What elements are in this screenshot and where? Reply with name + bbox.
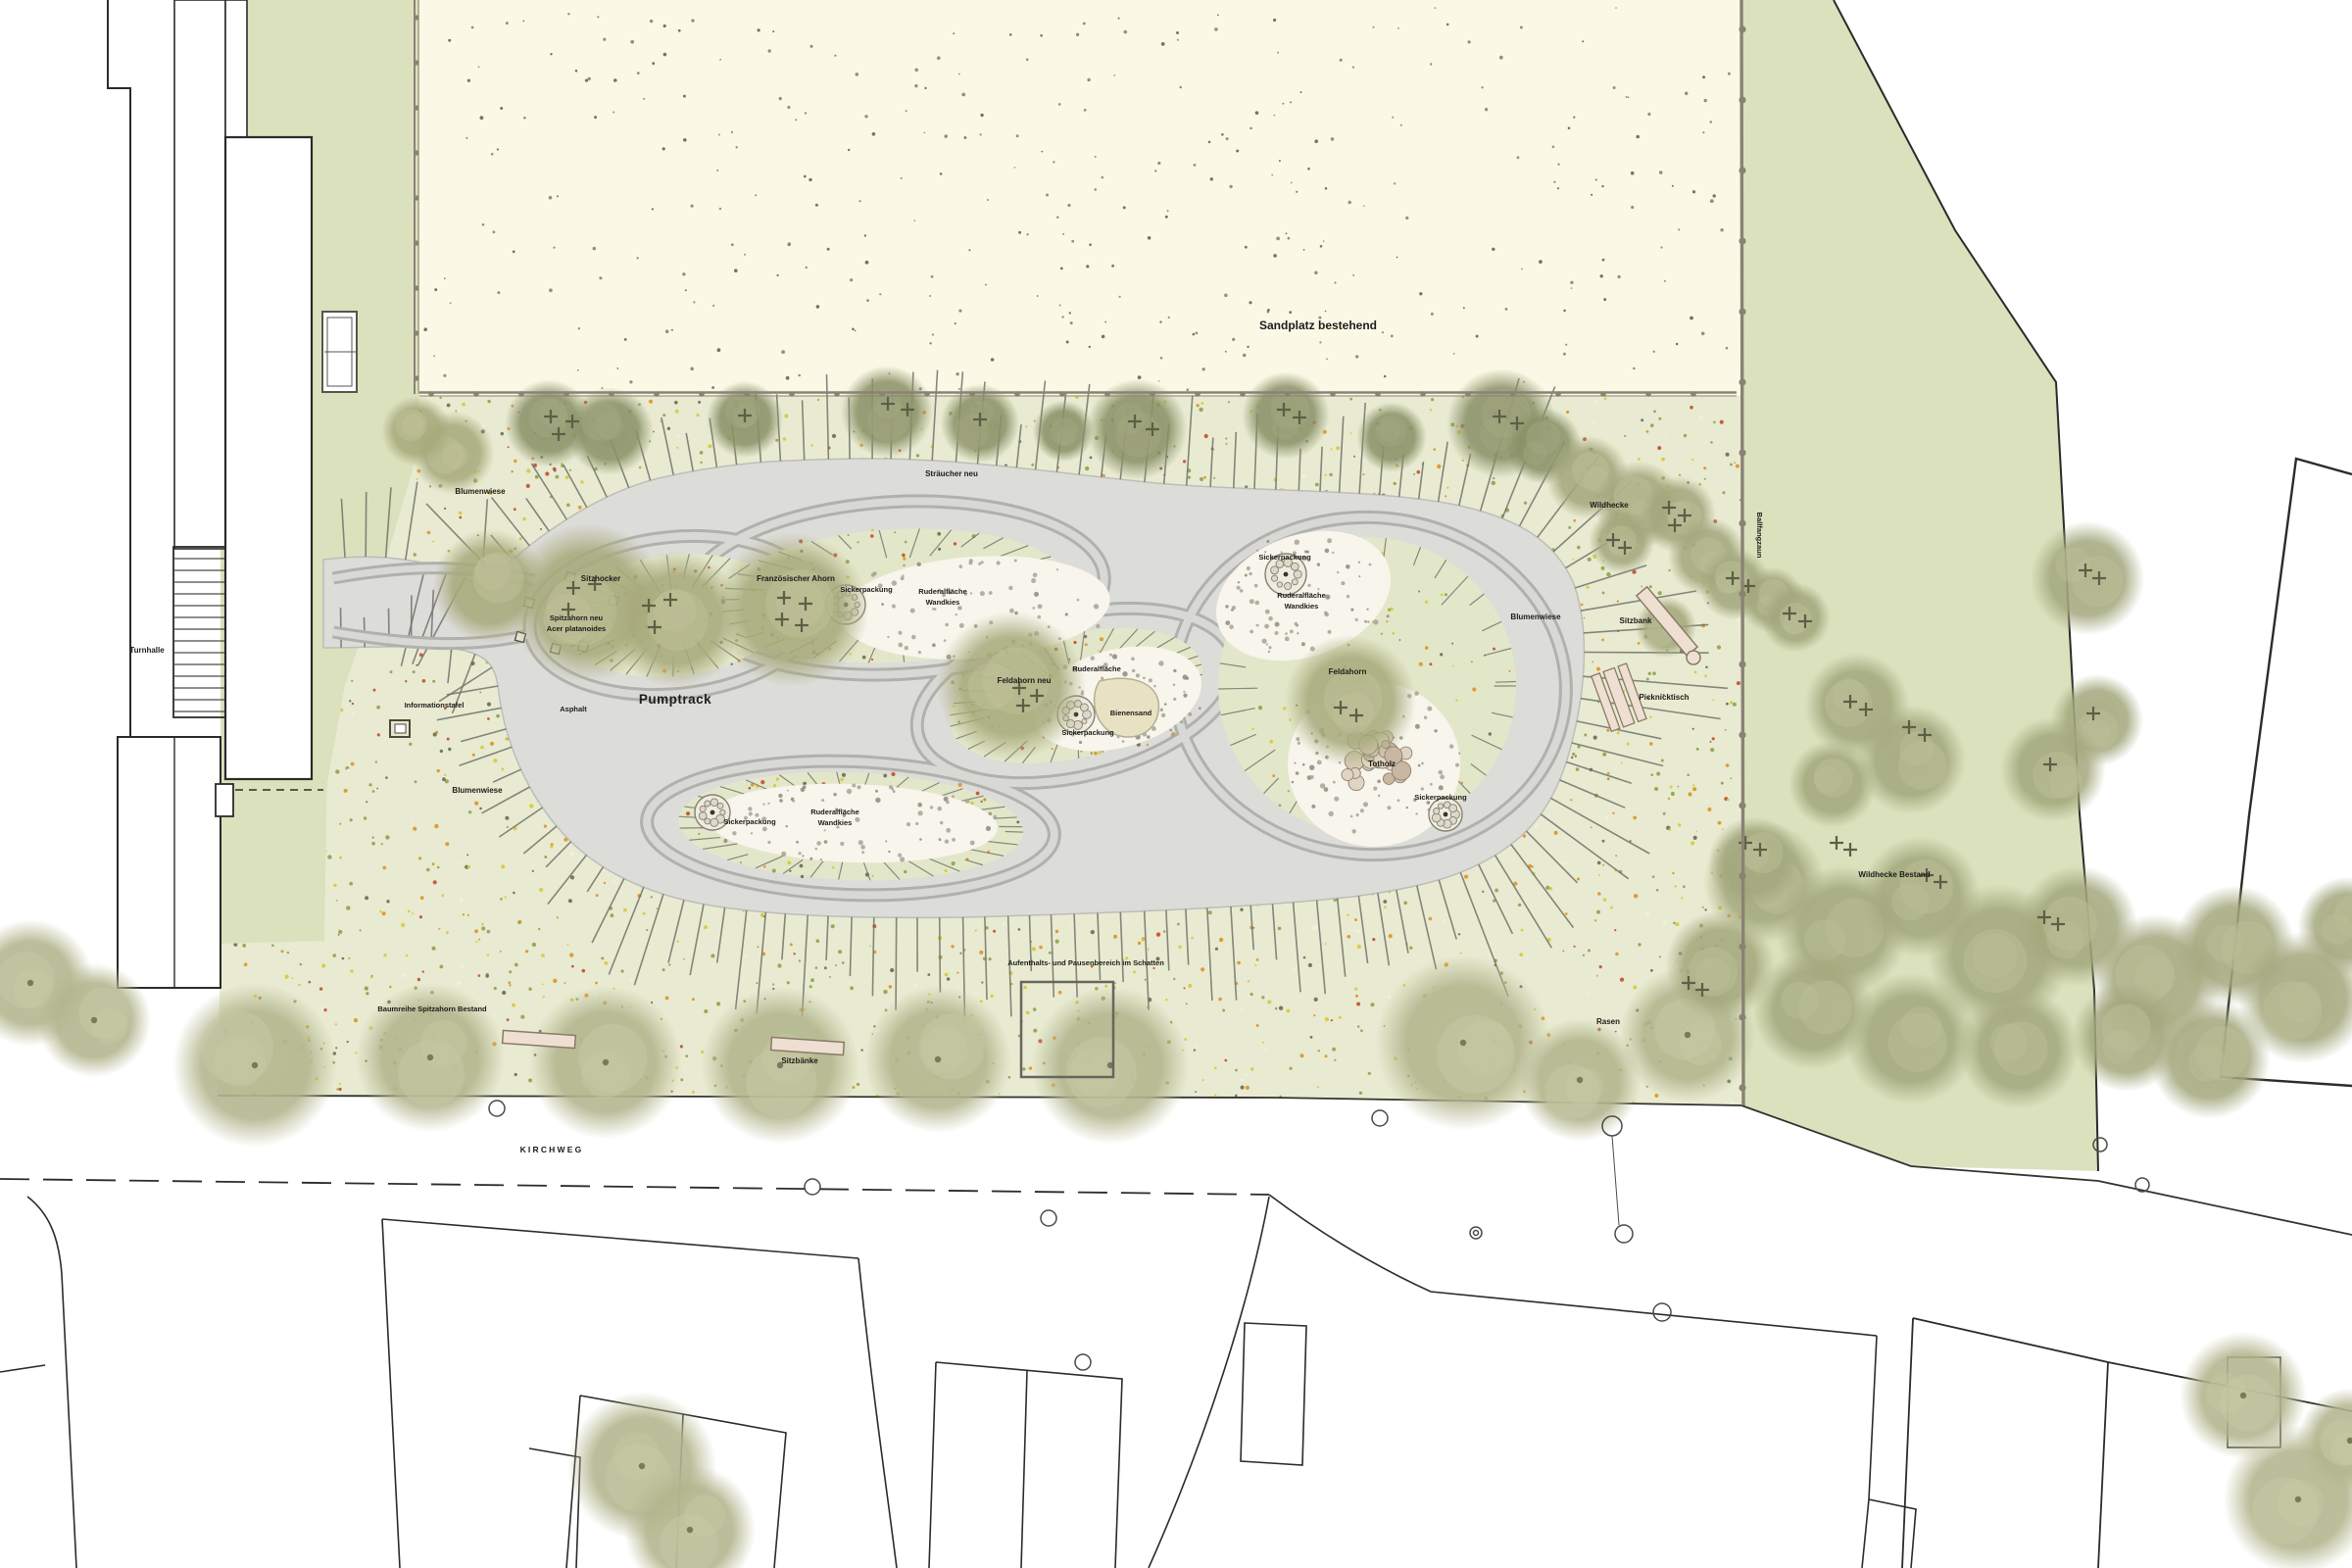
corridor — [174, 0, 225, 549]
turnhalle-annex — [225, 0, 247, 137]
tree — [1031, 986, 1189, 1144]
label-blumenwiese-left: Blumenwiese — [452, 786, 503, 795]
tree — [1356, 402, 1427, 472]
label-sickerpackung-3: Sickerpackung — [1258, 553, 1311, 562]
label-aufenthaltsbereich: Aufenthalts- und Pausenbereich im Schatt… — [1007, 958, 1164, 967]
tree — [529, 986, 683, 1140]
parcel-tick-left — [0, 1365, 45, 1372]
tree — [1845, 973, 1977, 1104]
bench-end-post — [1687, 651, 1700, 664]
tree — [1760, 582, 1831, 653]
tree — [565, 387, 654, 475]
label-rasen: Rasen — [1596, 1017, 1620, 1026]
tree — [172, 983, 337, 1148]
label-pumptrack: Pumptrack — [639, 692, 711, 707]
turnhalle-building — [225, 137, 312, 779]
building-small-center — [1241, 1323, 1306, 1465]
label-baumreihe: Baumreihe Spitzahorn Bestand — [377, 1004, 487, 1013]
road-south-edge-right — [1269, 1195, 1916, 1568]
label-feldahorn-neu: Feldahorn neu — [997, 676, 1051, 685]
parcel-center — [929, 1362, 1122, 1568]
sand-area — [419, 0, 1741, 396]
tree — [1086, 378, 1187, 479]
building-lower-left — [118, 737, 220, 988]
site-plan-canvas: Sandplatz bestehendBlumenwieseSträucher … — [0, 0, 2352, 1568]
label-ruderalflaeche-1: Ruderalfläche — [918, 587, 967, 596]
stairs — [174, 559, 224, 711]
label-sitzbank: Sitzbank — [1620, 616, 1652, 625]
tree — [1958, 988, 2079, 1108]
label-blumenwiese-top: Blumenwiese — [455, 487, 506, 496]
label-ballfangzaun: Ballfangzaun — [1755, 513, 1764, 559]
tree — [1788, 740, 1877, 828]
tree — [937, 612, 1086, 760]
road-property-line-dashed — [0, 1179, 1269, 1195]
tree — [1708, 816, 1800, 908]
label-franzoesischer-ahorn: Französischer Ahorn — [757, 574, 835, 583]
label-totholz: Totholz — [1368, 759, 1396, 768]
label-picknicktisch: Picknicktisch — [1639, 693, 1689, 702]
tree — [1285, 635, 1416, 766]
label-ruderalflaeche-2: Ruderalfläche — [1072, 664, 1121, 673]
stone-circle — [1429, 798, 1462, 831]
label-bienensand: Bienensand — [1110, 709, 1152, 717]
landscape-site-plan: Sandplatz bestehendBlumenwieseSträucher … — [0, 0, 2352, 1568]
label-straeucher-neu: Sträucher neu — [925, 469, 978, 478]
label-ruderalflaeche-4: Ruderalfläche — [810, 808, 859, 816]
label-wildhecke-bestand: Wildhecke Bestand — [1858, 870, 1930, 879]
label-blumenwiese-right: Blumenwiese — [1510, 612, 1561, 621]
tree — [715, 533, 869, 687]
label-sickerpackung-2: Sickerpackung — [1061, 728, 1114, 737]
label-asphalt: Asphalt — [560, 705, 587, 713]
label-informationstafel: Informationstafel — [405, 701, 465, 710]
side-street-right-curb — [1149, 1197, 1269, 1568]
label-ruderalflaeche-3: Ruderalfläche — [1277, 591, 1326, 600]
tree — [841, 366, 933, 458]
turnhalle-west-walls — [108, 0, 130, 737]
entrance-canopy — [216, 784, 233, 816]
table-object — [322, 312, 357, 392]
tree — [2031, 521, 2144, 635]
label-sickerpackung-1: Sickerpackung — [840, 585, 893, 594]
label-kirchweg: KIRCHWEG — [520, 1145, 584, 1154]
tree — [701, 986, 858, 1144]
label-sitzhocker: Sitzhocker — [581, 574, 620, 583]
label-sickerpackung-5: Sickerpackung — [723, 817, 776, 826]
label-ruderalflaeche-1: Wandkies — [926, 598, 960, 607]
tree — [1242, 371, 1330, 460]
label-turnhalle: Turnhalle — [129, 646, 165, 655]
label-sickerpackung-4: Sickerpackung — [1414, 793, 1467, 802]
tree — [1589, 508, 1654, 573]
curb-left — [27, 1197, 76, 1568]
label-feldahorn: Feldahorn — [1329, 667, 1367, 676]
label-spitzahorn-neu: Spitzahorn neu — [550, 613, 604, 622]
tree — [381, 396, 452, 466]
label-sitzbaenke: Sitzbänke — [781, 1056, 818, 1065]
info-board — [390, 720, 410, 737]
label-sandplatz-bestehend: Sandplatz bestehend — [1259, 318, 1377, 332]
tree — [1033, 401, 1095, 463]
tree — [864, 986, 1011, 1133]
label-spitzahorn-neu: Acer platanoides — [547, 624, 606, 633]
ball-catch-fence — [1741, 0, 1743, 1105]
stairs-outline — [173, 547, 225, 717]
label-ruderalflaeche-4: Wandkies — [818, 818, 853, 827]
tree — [1665, 910, 1775, 1020]
tree — [2000, 716, 2106, 822]
label-wildhecke: Wildhecke — [1590, 501, 1629, 510]
tree — [37, 963, 151, 1077]
label-ruderalflaeche-3: Wandkies — [1285, 602, 1319, 611]
tree — [433, 529, 547, 643]
